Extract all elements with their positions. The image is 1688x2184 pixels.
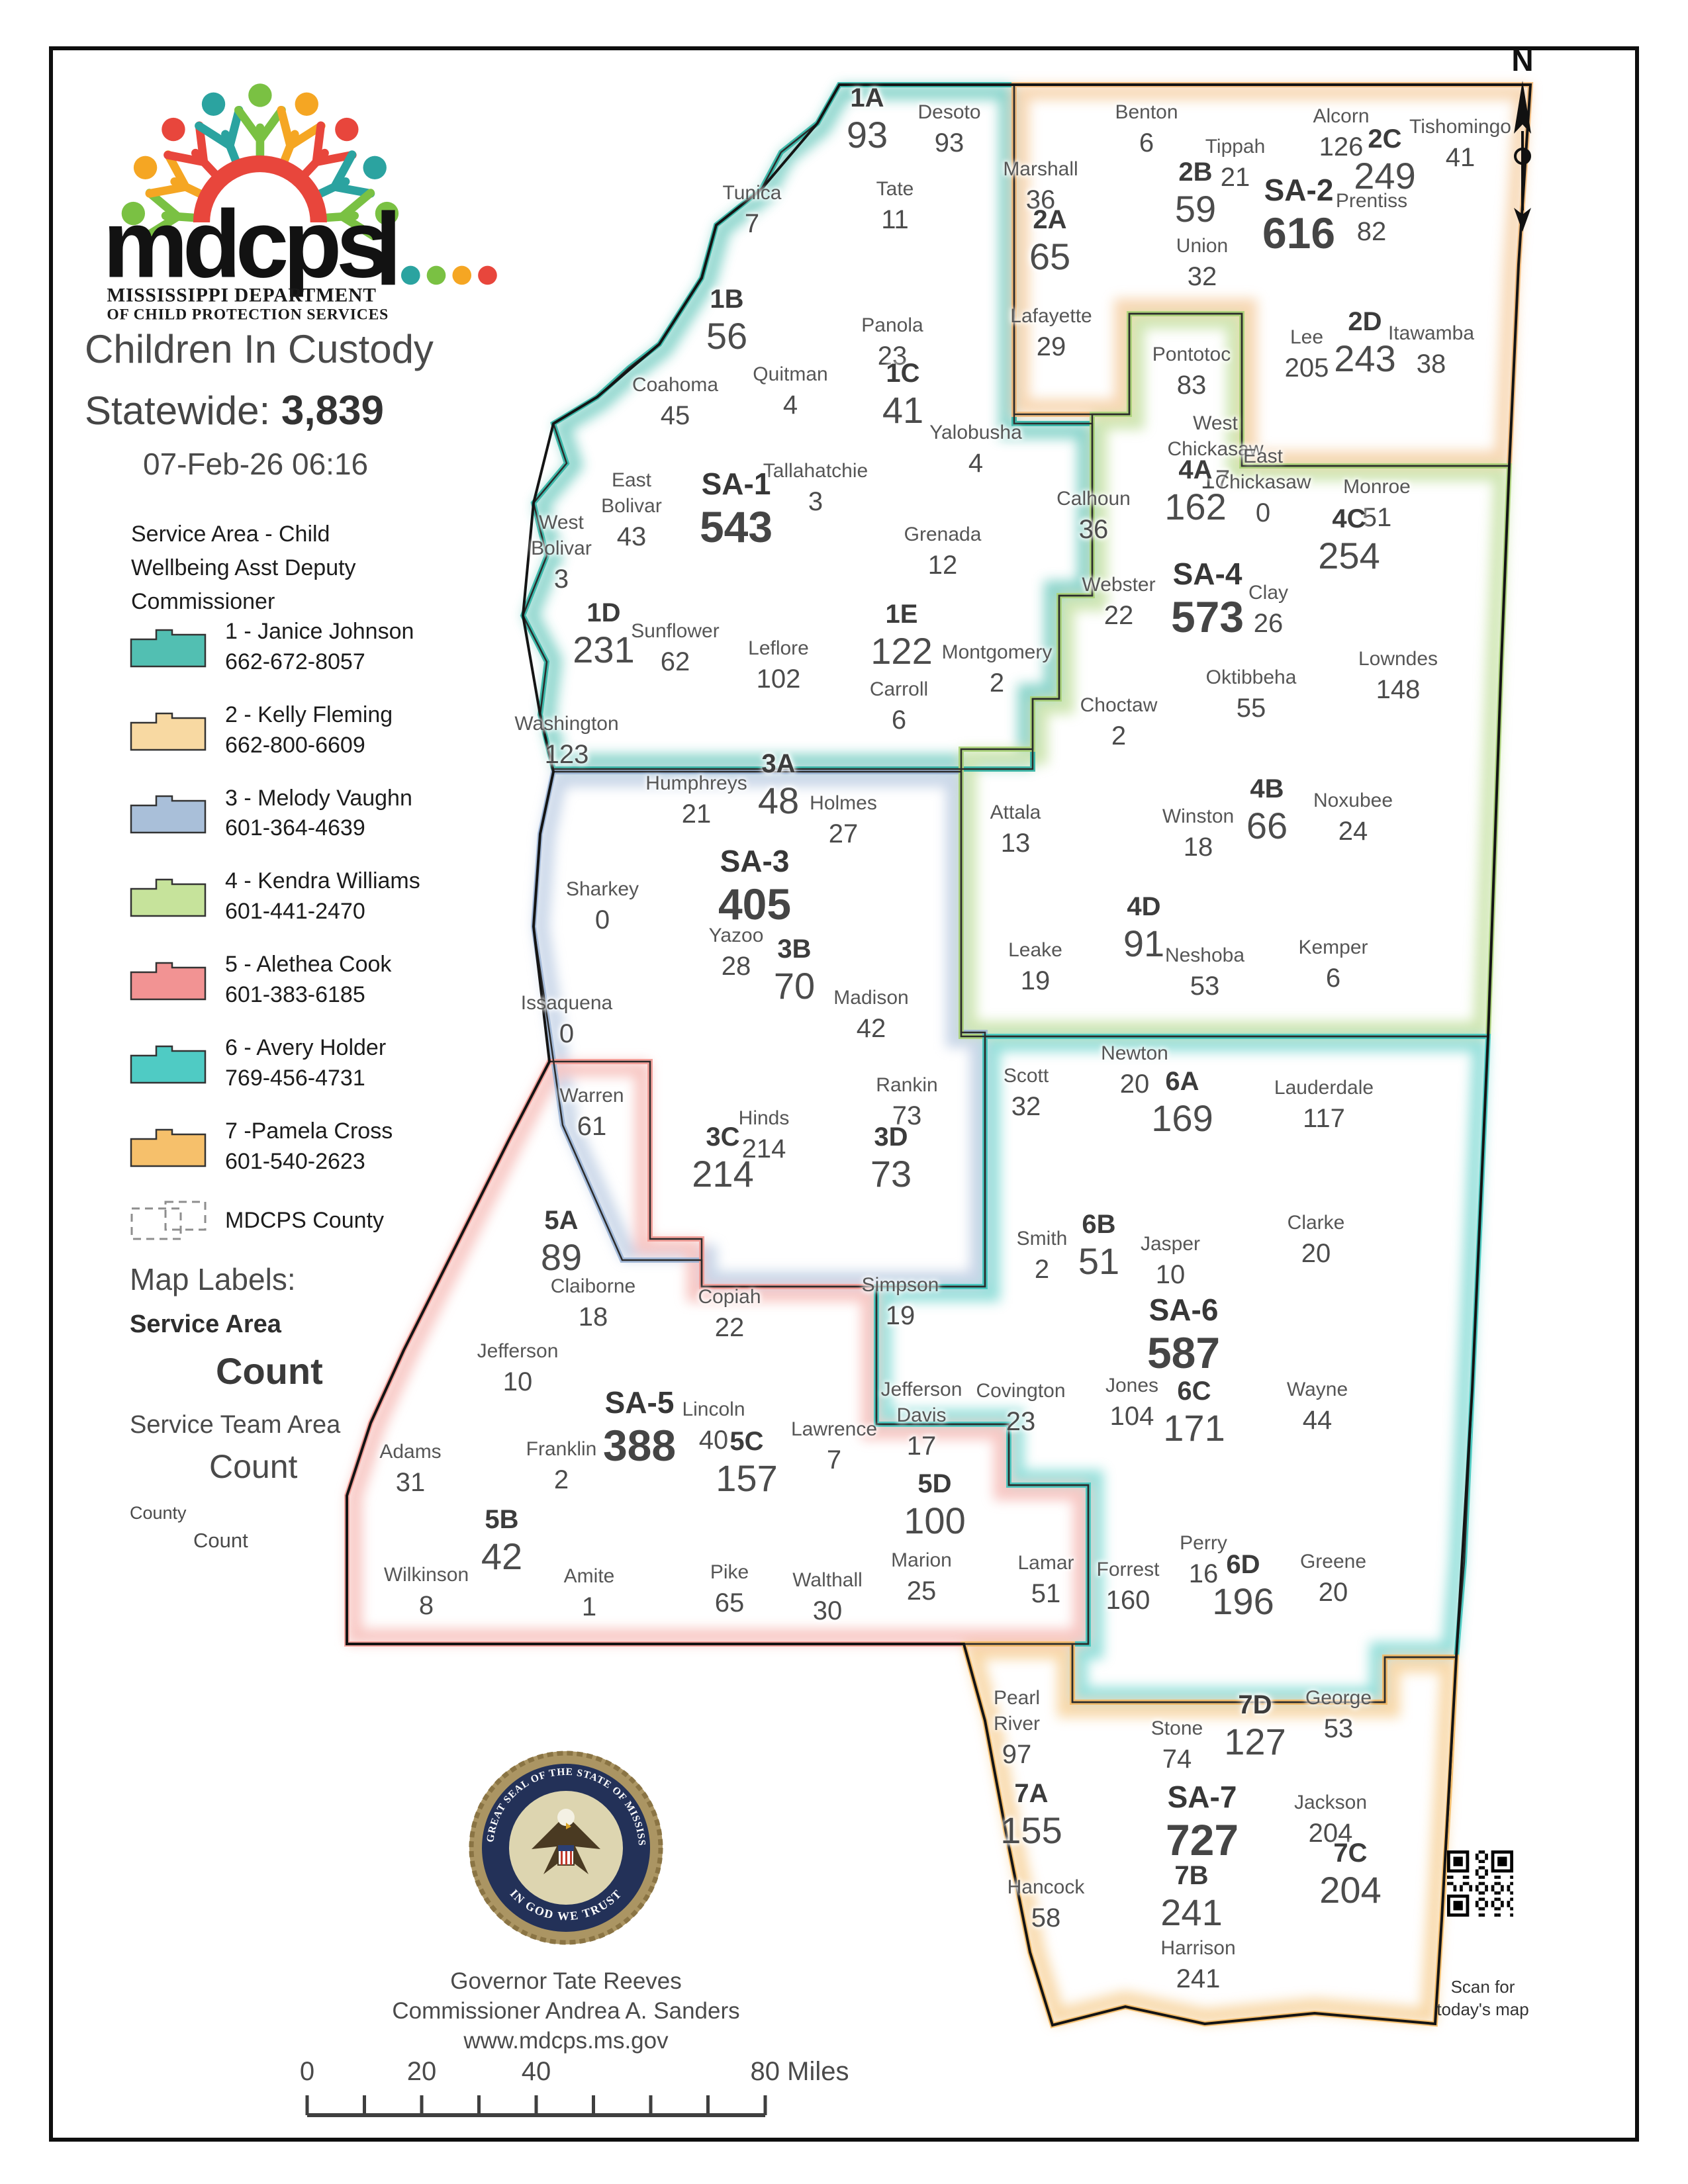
scale-label: 80 Miles: [751, 2057, 849, 2087]
legend-item-name: 2 - Kelly Fleming: [225, 700, 393, 731]
legend-title-line: Commissioner: [131, 585, 356, 619]
map-labels-heading: Map Labels:: [130, 1261, 340, 1297]
north-arrow-icon: [1497, 78, 1548, 234]
report-datetime: 07-Feb-26 06:16: [85, 449, 434, 479]
page-title: Children In Custody: [85, 330, 434, 369]
legend-item: 6 - Avery Holder 769-456-4731: [130, 1033, 420, 1094]
legend-item-phone: 601-383-6185: [225, 980, 391, 1011]
scale-bar-ruler: [291, 2057, 821, 2130]
legend-swatch-icon: [130, 959, 208, 1001]
legend-item-phone: 662-672-8057: [225, 647, 414, 678]
qr-code: [1447, 1850, 1513, 1917]
legend-item-name: 1 - Janice Johnson: [225, 617, 414, 647]
legend-item: 5 - Alethea Cook 601-383-6185: [130, 950, 420, 1011]
legend-title: Service Area - Child Wellbeing Asst Depu…: [131, 518, 356, 619]
key-service-area-count: Count: [130, 1349, 340, 1392]
legend-item: 1 - Janice Johnson 662-672-8057: [130, 617, 420, 678]
legend-swatch-icon: [130, 709, 208, 752]
legend-title-line: Wellbeing Asst Deputy: [131, 551, 356, 585]
scale-label: 40: [522, 2057, 551, 2087]
logo-divider-bar: [381, 210, 395, 285]
legend-item: 4 - Kendra Williams 601-441-2470: [130, 866, 420, 927]
map-poster-page: Desoto93Tunica7Tate11Marshall36Benton6Ti…: [0, 0, 1688, 2184]
footer-text: Governor Tate Reeves Commissioner Andrea…: [367, 1967, 765, 2056]
logo-dot-icon: [478, 266, 497, 285]
mdcps-county-swatch-icon: [130, 1199, 208, 1242]
logo-dot-icon: [452, 266, 471, 285]
legend-item-text: 7 -Pamela Cross 601-540-2623: [225, 1116, 393, 1177]
legend-item-name: 7 -Pamela Cross: [225, 1116, 393, 1147]
key-team-area-count: Count: [130, 1447, 340, 1486]
legend-item-name: 4 - Kendra Williams: [225, 866, 420, 897]
statewide-value: 3,839: [281, 388, 384, 433]
logo-brand-text: mdcps: [103, 190, 386, 297]
service-area-fills: [347, 85, 1530, 2025]
logo-dept-line2: OF CHILD PROTECTION SERVICES: [107, 306, 389, 323]
legend-item-phone: 662-800-6609: [225, 731, 393, 761]
legend: 1 - Janice Johnson 662-672-8057 2 - Kell…: [130, 617, 420, 1264]
legend-swatch-icon: [130, 1126, 208, 1168]
legend-item-text: 3 - Melody Vaughn 601-364-4639: [225, 784, 412, 844]
legend-item-text: 4 - Kendra Williams 601-441-2470: [225, 866, 420, 927]
legend-item-name: 5 - Alethea Cook: [225, 950, 391, 980]
legend-item: 3 - Melody Vaughn 601-364-4639: [130, 784, 420, 844]
scale-bar: 0204080 Miles: [291, 2057, 821, 2130]
key-service-area: Service Area: [130, 1310, 340, 1339]
legend-item-name: 3 - Melody Vaughn: [225, 784, 412, 814]
qr-caption-line: Scan for: [1417, 1976, 1549, 1999]
legend-item: 7 -Pamela Cross 601-540-2623: [130, 1116, 420, 1177]
key-county-count: Count: [130, 1529, 340, 1553]
compass: N: [1497, 42, 1548, 238]
logo-dot-icon: [401, 266, 420, 285]
legend-item-name: MDCPS County: [225, 1206, 384, 1236]
legend-item-phone: 601-540-2623: [225, 1147, 393, 1177]
logo-dept-line1: MISSISSIPPI DEPARTMENT: [107, 285, 376, 306]
title-block: Children In Custody Statewide: 3,839 07-…: [85, 330, 434, 479]
legend-item-phone: 601-441-2470: [225, 897, 420, 927]
logo-person-icon: [238, 83, 281, 159]
legend-item-text: 6 - Avery Holder 769-456-4731: [225, 1033, 386, 1094]
scale-label: 0: [300, 2057, 314, 2087]
statewide-line: Statewide: 3,839: [85, 390, 434, 432]
legend-item-phone: 769-456-4731: [225, 1064, 386, 1094]
legend-title-line: Service Area - Child: [131, 518, 356, 551]
mdcps-logo: mdcps MISSISSIPPI DEPARTMENT OF CHILD PR…: [76, 38, 500, 328]
scale-label: 20: [407, 2057, 437, 2087]
key-county: County: [130, 1503, 340, 1524]
governor-line: Governor Tate Reeves: [367, 1967, 765, 1997]
logo-dots-icon: [401, 266, 497, 285]
commissioner-line: Commissioner Andrea A. Sanders: [367, 1997, 765, 2026]
legend-item-text: 1 - Janice Johnson 662-672-8057: [225, 617, 414, 678]
legend-item-text: 5 - Alethea Cook 601-383-6185: [225, 950, 391, 1011]
legend-item: 2 - Kelly Fleming 662-800-6609: [130, 700, 420, 761]
legend-swatch-icon: [130, 626, 208, 668]
map-labels-key: Map Labels: Service Area Count Service T…: [130, 1261, 340, 1553]
legend-item-text: 2 - Kelly Fleming 662-800-6609: [225, 700, 393, 761]
legend-item-text: MDCPS County: [225, 1206, 384, 1236]
qr-caption-line: today's map: [1417, 1999, 1549, 2021]
state-seal-icon: THE GREAT SEAL OF THE STATE OF MISSISSIP…: [467, 1749, 665, 1947]
legend-item-name: 6 - Avery Holder: [225, 1033, 386, 1064]
legend-item-mdcps-county: MDCPS County: [130, 1199, 420, 1242]
logo-person-icon: [303, 118, 358, 177]
legend-item-phone: 601-364-4639: [225, 813, 412, 844]
legend-swatch-icon: [130, 792, 208, 835]
logo-dot-icon: [427, 266, 446, 285]
website-line: www.mdcps.ms.gov: [367, 2026, 765, 2056]
legend-swatch-icon: [130, 876, 208, 918]
key-team-area: Service Team Area: [130, 1411, 340, 1439]
statewide-label: Statewide:: [85, 388, 281, 433]
qr-caption: Scan for today's map: [1417, 1976, 1549, 2021]
legend-swatch-icon: [130, 1042, 208, 1085]
compass-n-label: N: [1497, 42, 1548, 78]
logo-person-icon: [162, 118, 217, 177]
